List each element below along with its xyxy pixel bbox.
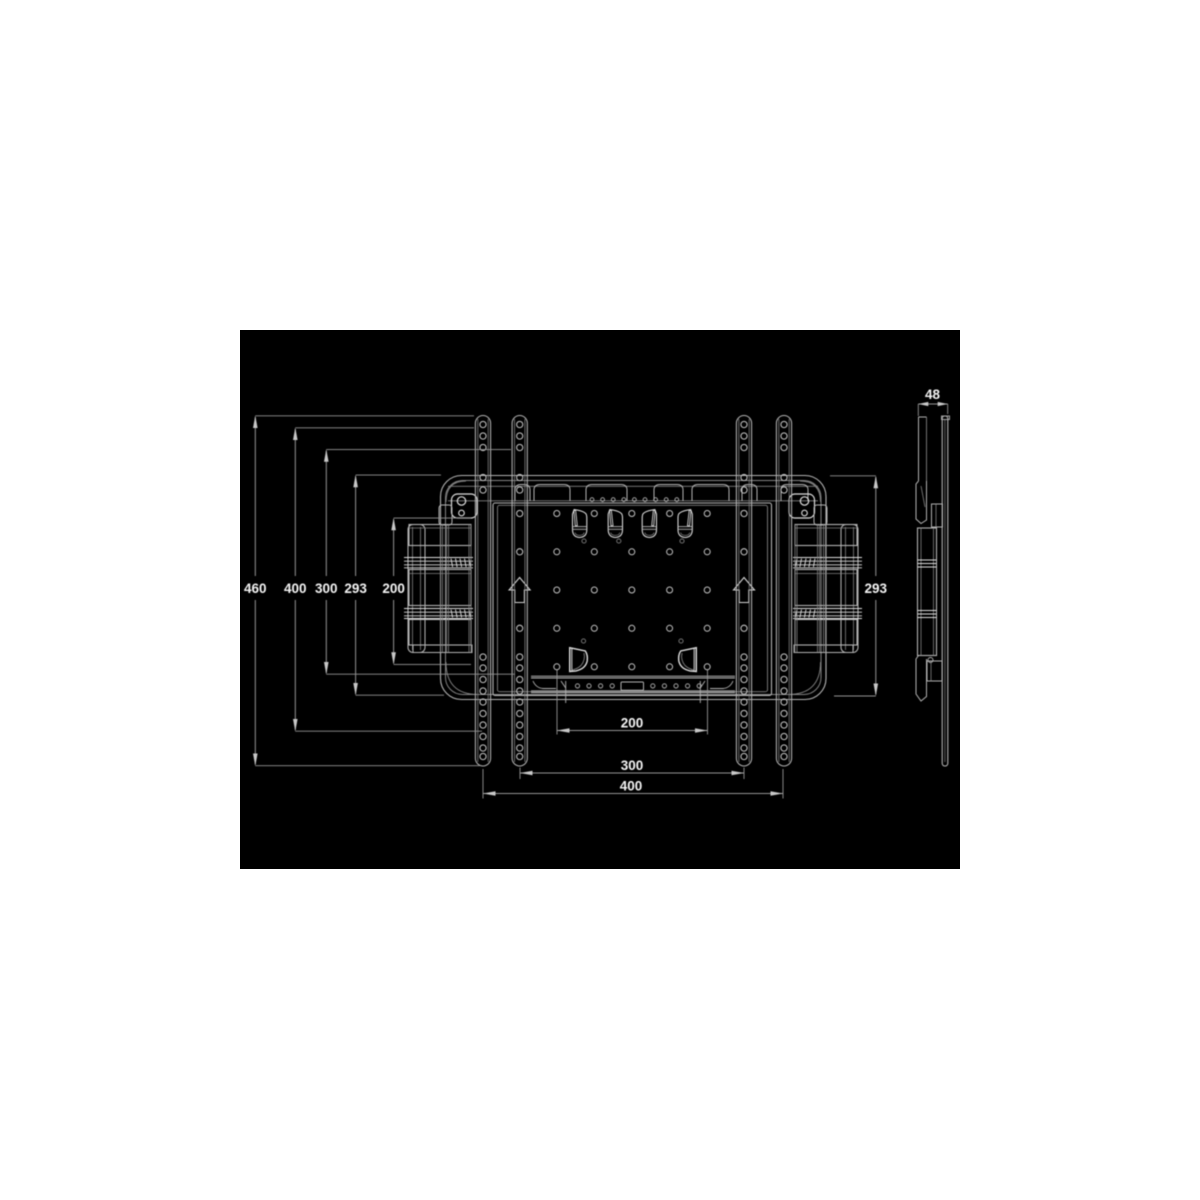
svg-text:293: 293 xyxy=(344,581,367,596)
svg-text:300: 300 xyxy=(621,758,644,773)
svg-text:300: 300 xyxy=(315,581,338,596)
svg-text:460: 460 xyxy=(244,581,267,596)
svg-text:400: 400 xyxy=(620,779,643,794)
svg-text:400: 400 xyxy=(284,581,307,596)
svg-text:200: 200 xyxy=(382,581,405,596)
svg-text:48: 48 xyxy=(925,387,941,402)
svg-text:293: 293 xyxy=(865,581,888,596)
svg-text:200: 200 xyxy=(621,716,644,731)
